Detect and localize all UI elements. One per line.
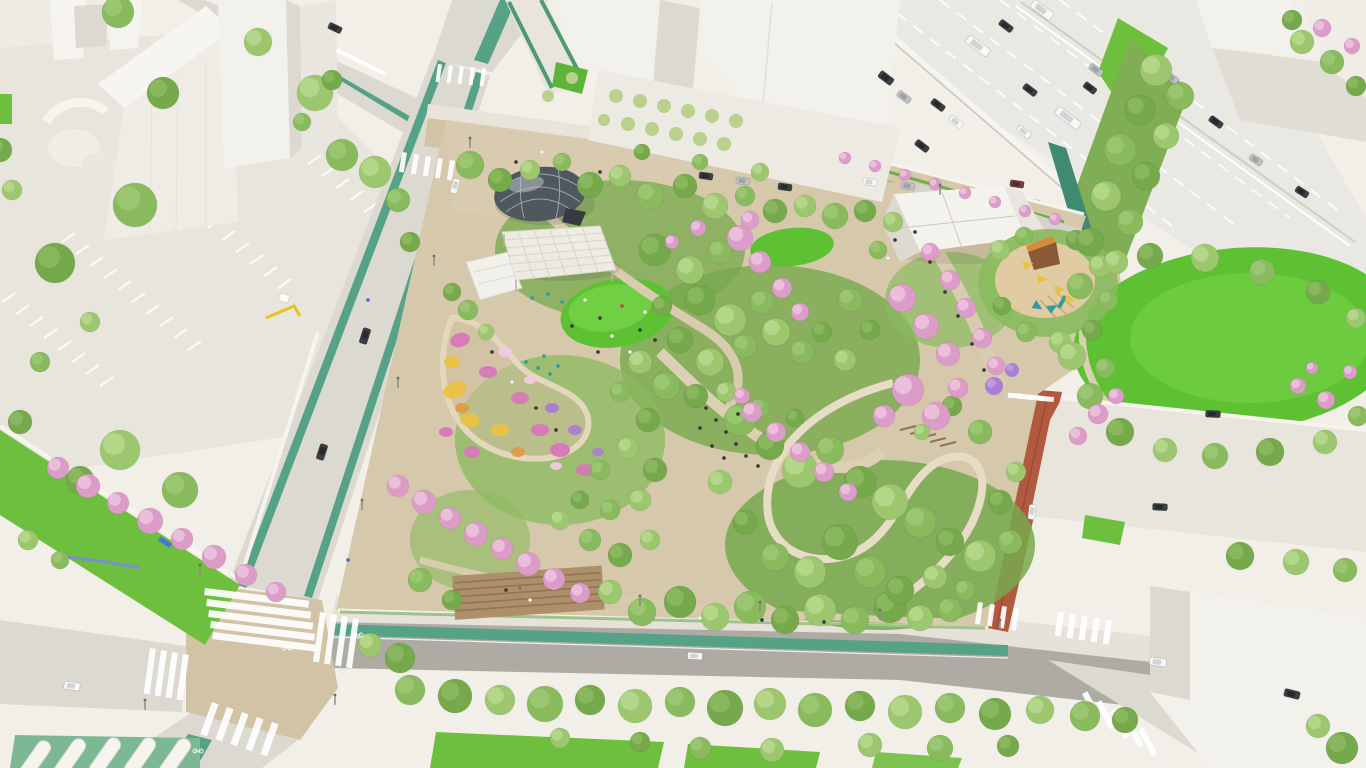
tree-highlight — [938, 530, 953, 545]
tree-highlight — [906, 508, 924, 526]
tree-highlight — [1119, 211, 1133, 225]
flower-bed — [545, 403, 559, 413]
flowering-tree-highlight — [389, 477, 401, 489]
purple-tree-highlight — [987, 379, 996, 388]
tree-highlight — [801, 696, 820, 715]
tree-highlight — [1228, 544, 1243, 559]
tree-highlight — [402, 234, 413, 245]
tree-highlight — [1139, 245, 1153, 259]
tree-highlight — [460, 302, 471, 313]
tree-highlight — [577, 687, 594, 704]
tree-highlight — [602, 502, 613, 513]
light-head — [999, 619, 1002, 622]
tree-highlight — [710, 472, 723, 485]
tree-highlight — [1084, 322, 1095, 333]
flowering-tree-highlight — [792, 444, 803, 455]
plaza-tree — [598, 114, 610, 126]
person — [643, 310, 647, 314]
tree-highlight — [726, 406, 744, 424]
tree-highlight — [642, 532, 653, 543]
tree-highlight — [666, 588, 684, 606]
person — [610, 334, 614, 338]
light-head — [879, 609, 882, 612]
tree-highlight — [735, 512, 748, 525]
flower-bed — [491, 424, 509, 436]
tree-highlight — [787, 410, 797, 420]
tree-highlight — [824, 205, 838, 219]
tree-highlight — [149, 79, 167, 97]
flowering-tree-highlight — [1344, 366, 1352, 374]
tree-highlight — [1000, 532, 1013, 545]
flowering-tree-highlight — [875, 407, 887, 419]
tree-highlight — [619, 439, 631, 451]
building-southeast-face — [1150, 586, 1190, 700]
flower-bed — [464, 446, 480, 458]
flowering-tree-highlight — [1050, 214, 1057, 221]
tree-highlight — [762, 740, 775, 753]
person — [970, 342, 974, 346]
light-head — [144, 699, 147, 702]
tree-highlight — [1315, 432, 1328, 445]
person — [704, 406, 708, 410]
tree-highlight — [1127, 97, 1144, 114]
tree-highlight — [632, 734, 643, 745]
tree-highlight — [862, 322, 873, 333]
person — [366, 298, 370, 302]
tree-highlight — [645, 460, 658, 473]
plaza-tree — [717, 137, 731, 151]
tree-highlight — [20, 532, 31, 543]
tree-highlight — [1108, 420, 1123, 435]
tree-highlight — [999, 737, 1011, 749]
person — [554, 428, 558, 432]
flowering-tree-highlight — [1318, 392, 1328, 402]
tree-highlight — [294, 114, 304, 124]
person — [943, 290, 947, 294]
tree-highlight — [875, 487, 895, 507]
tree-highlight — [687, 287, 704, 304]
tree-highlight — [710, 242, 723, 255]
flowering-tree-highlight — [1090, 406, 1101, 417]
tree-highlight — [718, 384, 729, 395]
person — [913, 230, 917, 234]
flowering-tree-highlight — [742, 212, 752, 222]
tree-highlight — [630, 600, 645, 615]
flowering-tree-highlight — [950, 380, 961, 391]
vehicle-cabin — [690, 653, 698, 658]
tree-highlight — [1350, 408, 1361, 419]
plaza-tree — [681, 104, 695, 118]
tree-highlight — [38, 246, 60, 268]
flowering-tree-highlight — [942, 272, 953, 283]
person — [598, 316, 602, 320]
tree-highlight — [1060, 344, 1075, 359]
plaza-tree — [542, 90, 554, 102]
tree-highlight — [765, 201, 778, 214]
tree-highlight — [1193, 246, 1208, 261]
flowering-tree-highlight — [173, 530, 185, 542]
flower-bed — [479, 366, 497, 378]
person — [724, 430, 728, 434]
flowering-tree-highlight — [930, 179, 937, 186]
tree-highlight — [165, 475, 185, 495]
tree-highlight — [860, 735, 873, 748]
tree-highlight — [441, 682, 460, 701]
flowering-tree-highlight — [988, 358, 998, 368]
flowering-tree-highlight — [518, 554, 531, 567]
flowering-tree-highlight — [751, 253, 763, 265]
tree-highlight — [1292, 32, 1305, 45]
flower-bed — [511, 447, 525, 457]
flowering-tree-highlight — [109, 494, 121, 506]
flowering-tree-highlight — [840, 153, 847, 160]
tree-highlight — [579, 174, 593, 188]
person — [510, 380, 514, 384]
person — [570, 324, 574, 328]
plaza-tree — [693, 132, 707, 146]
flowering-tree-highlight — [268, 584, 279, 595]
tree-highlight — [792, 342, 805, 355]
vehicle-cabin — [1155, 505, 1163, 510]
tree-highlight — [612, 384, 623, 395]
tree-highlight — [630, 352, 643, 365]
person — [698, 426, 702, 430]
tree-highlight — [116, 186, 140, 210]
person — [504, 588, 508, 592]
person — [756, 464, 760, 468]
tree-highlight — [1114, 709, 1128, 723]
car — [687, 652, 702, 660]
plant-tower — [218, 0, 290, 168]
flowering-tree-highlight — [924, 404, 939, 419]
person — [638, 328, 642, 332]
light-head — [519, 587, 522, 590]
tree-highlight — [915, 425, 924, 434]
light-head — [759, 601, 762, 604]
tree-highlight — [328, 141, 346, 159]
flowering-tree-highlight — [915, 315, 929, 329]
tree-highlight — [361, 158, 379, 176]
tree-highlight — [1168, 84, 1183, 99]
tree-highlight — [1284, 12, 1295, 23]
person — [620, 304, 624, 308]
person — [596, 350, 600, 354]
tree-highlight — [693, 155, 702, 164]
flowering-tree-highlight — [204, 547, 217, 560]
tree-highlight — [885, 214, 896, 225]
tree-highlight — [631, 491, 643, 503]
tree-highlight — [856, 202, 868, 214]
flowering-tree-highlight — [1314, 20, 1324, 30]
flowering-tree-highlight — [237, 566, 249, 578]
flowering-tree-highlight — [545, 570, 557, 582]
tree-highlight — [990, 492, 1003, 505]
flowering-tree-highlight — [894, 376, 912, 394]
flower-bed — [531, 424, 549, 436]
plaza-tree — [621, 117, 635, 131]
tree-highlight — [1018, 324, 1029, 335]
plaza-tree — [566, 72, 578, 84]
tree-highlight — [992, 242, 1003, 253]
flower-bed — [524, 376, 536, 384]
tree-highlight — [888, 578, 903, 593]
tree-highlight — [818, 438, 833, 453]
flowering-tree-highlight — [1291, 379, 1300, 388]
flowering-tree-highlight — [990, 197, 997, 204]
flowering-tree-highlight — [49, 459, 61, 471]
grass-sliver — [0, 94, 12, 124]
tree-highlight — [704, 195, 718, 209]
person — [514, 160, 518, 164]
tree-highlight — [1078, 230, 1093, 245]
flowering-tree-highlight — [958, 300, 969, 311]
tree-highlight — [554, 154, 564, 164]
light-head — [469, 137, 472, 140]
plaza-tree — [657, 99, 671, 113]
tree-highlight — [675, 176, 688, 189]
tree-highlight — [937, 695, 954, 712]
flower-bed — [511, 392, 529, 404]
tree-highlight — [1258, 440, 1273, 455]
tree-highlight — [763, 545, 778, 560]
person — [822, 620, 826, 624]
person — [760, 618, 764, 622]
flowering-tree-highlight — [466, 524, 479, 537]
tree-highlight — [1251, 261, 1265, 275]
person — [598, 170, 602, 174]
tree-highlight — [621, 692, 640, 711]
tree-highlight — [581, 531, 593, 543]
tree-highlight — [1028, 698, 1043, 713]
tree-highlight — [1134, 164, 1149, 179]
flowering-tree-highlight — [572, 585, 583, 596]
plaza-tree — [669, 127, 683, 141]
tree-highlight — [698, 350, 713, 365]
light-head — [361, 499, 364, 502]
light-head — [639, 595, 642, 598]
tree-highlight — [773, 608, 788, 623]
plaza-tree — [609, 89, 623, 103]
person — [540, 150, 544, 154]
tree-highlight — [669, 329, 683, 343]
person — [346, 558, 350, 562]
flowering-tree-highlight — [139, 510, 153, 524]
car — [1028, 504, 1037, 520]
tree-highlight — [909, 607, 923, 621]
tree-highlight — [735, 336, 748, 349]
person — [722, 456, 726, 460]
person — [628, 350, 632, 354]
flowering-tree-highlight — [840, 484, 850, 494]
tree-highlight — [387, 645, 404, 662]
tree-highlight — [52, 552, 62, 562]
tree-highlight — [611, 167, 623, 179]
tree-highlight — [592, 462, 603, 473]
park-rendering: Aerial rendering of a planned urban park… — [0, 0, 1366, 768]
tree-highlight — [1348, 78, 1359, 89]
tree-highlight — [1285, 551, 1299, 565]
car — [1205, 410, 1220, 418]
flowering-tree-highlight — [1020, 206, 1027, 213]
tree-highlight — [970, 422, 983, 435]
person — [490, 350, 494, 354]
light-head — [334, 694, 337, 697]
person — [653, 338, 657, 342]
flowering-tree-highlight — [922, 244, 932, 254]
flowering-tree-highlight — [768, 424, 779, 435]
tree-highlight — [856, 558, 874, 576]
tree-highlight — [641, 236, 659, 254]
person — [928, 260, 932, 264]
tree-highlight — [10, 412, 23, 425]
person — [714, 418, 718, 422]
person — [893, 238, 897, 242]
tree-highlight — [994, 298, 1004, 308]
tree-highlight — [1155, 125, 1169, 139]
flowering-tree-highlight — [890, 286, 905, 301]
plaza-tree — [729, 114, 743, 128]
tree-highlight — [796, 558, 814, 576]
flowering-tree-highlight — [1109, 389, 1118, 398]
plaza-tree — [645, 122, 659, 136]
tree-highlight — [552, 512, 563, 523]
tree-highlight — [840, 290, 853, 303]
tree-highlight — [796, 197, 808, 209]
tree-highlight — [1051, 333, 1063, 345]
vehicle-cabin — [1029, 507, 1034, 515]
tree-highlight — [925, 567, 938, 580]
flower-bed — [550, 443, 570, 457]
tree-highlight — [1322, 52, 1335, 65]
tree-highlight — [444, 592, 455, 603]
tree-highlight — [929, 737, 943, 751]
flowering-tree-highlight — [1070, 428, 1080, 438]
flowering-tree-highlight — [78, 476, 91, 489]
flowering-tree-highlight — [744, 404, 755, 415]
tree-highlight — [843, 608, 858, 623]
tree-highlight — [530, 689, 550, 709]
tree-highlight — [1016, 228, 1026, 238]
light-head — [433, 255, 436, 258]
flower-bed — [439, 427, 453, 437]
tree-highlight — [836, 351, 848, 363]
person — [736, 412, 740, 416]
flowering-tree-highlight — [729, 227, 743, 241]
flower-bed — [455, 403, 469, 413]
tree-highlight — [1155, 440, 1168, 453]
person — [710, 444, 714, 448]
tree-highlight — [552, 730, 563, 741]
tree-highlight — [638, 184, 653, 199]
tree-highlight — [103, 433, 125, 455]
tree-highlight — [490, 170, 503, 183]
flowering-tree-highlight — [774, 280, 785, 291]
tree-highlight — [1106, 252, 1119, 265]
tree-highlight — [610, 545, 623, 558]
tree-highlight — [870, 242, 880, 252]
tree-highlight — [654, 298, 665, 309]
tree-highlight — [891, 698, 910, 717]
tree-highlight — [966, 542, 984, 560]
flowering-tree-highlight — [870, 161, 877, 168]
tree-highlight — [691, 739, 703, 751]
tree-highlight — [32, 354, 43, 365]
flowering-tree-highlight — [493, 540, 505, 552]
tree-highlight — [487, 687, 504, 704]
plant-cooling-2 — [81, 153, 119, 179]
tree-highlight — [1335, 560, 1348, 573]
flower-bed — [592, 448, 604, 456]
tree-highlight — [825, 527, 845, 547]
tree-highlight — [1093, 183, 1110, 200]
aerial-scene — [0, 0, 1366, 768]
tree-highlight — [522, 162, 533, 173]
tree-highlight — [957, 582, 968, 593]
tree-highlight — [1072, 703, 1089, 720]
tree-highlight — [806, 596, 824, 614]
tree-highlight — [388, 190, 401, 203]
tree-highlight — [82, 314, 93, 325]
flowering-tree-highlight — [974, 330, 985, 341]
light-head — [939, 184, 942, 187]
tree-highlight — [246, 30, 261, 45]
tree-highlight — [444, 284, 454, 294]
flowering-tree-highlight — [1307, 363, 1314, 370]
tree-highlight — [1142, 56, 1160, 74]
tree-highlight — [736, 593, 754, 611]
tree-highlight — [1097, 360, 1108, 371]
tree-highlight — [458, 153, 473, 168]
tree-highlight — [678, 258, 693, 273]
tree-highlight — [1204, 445, 1218, 459]
flowering-tree-highlight — [414, 492, 427, 505]
flowering-tree-highlight — [900, 170, 907, 177]
tree-highlight — [737, 188, 748, 199]
purple-tree-highlight — [1006, 364, 1013, 371]
tree-highlight — [1008, 464, 1019, 475]
flowering-tree-highlight — [441, 509, 453, 521]
tree-highlight — [635, 145, 644, 154]
tree-highlight — [847, 693, 864, 710]
light-head — [199, 564, 202, 567]
person — [698, 616, 702, 620]
tree-highlight — [479, 325, 488, 334]
vehicle-cabin — [1208, 412, 1216, 417]
person — [956, 314, 960, 318]
flower-bed — [568, 425, 582, 435]
person — [534, 406, 538, 410]
tree-highlight — [1308, 716, 1321, 729]
tree-highlight — [638, 410, 651, 423]
plaza-tree — [633, 94, 647, 108]
tree-highlight — [686, 386, 699, 399]
tree-highlight — [4, 182, 15, 193]
car — [1152, 503, 1167, 511]
tree-highlight — [703, 605, 718, 620]
person — [528, 598, 532, 602]
tree-highlight — [1308, 282, 1321, 295]
flowering-tree-highlight — [1345, 39, 1354, 48]
tree-highlight — [756, 690, 774, 708]
tree-highlight — [572, 492, 582, 502]
tree-highlight — [710, 693, 730, 713]
tree-highlight — [1348, 310, 1359, 321]
tree-highlight — [654, 374, 669, 389]
tree-highlight — [667, 689, 684, 706]
flowering-tree-highlight — [938, 344, 951, 357]
flowering-tree-highlight — [792, 304, 802, 314]
tree-highlight — [1106, 136, 1124, 154]
